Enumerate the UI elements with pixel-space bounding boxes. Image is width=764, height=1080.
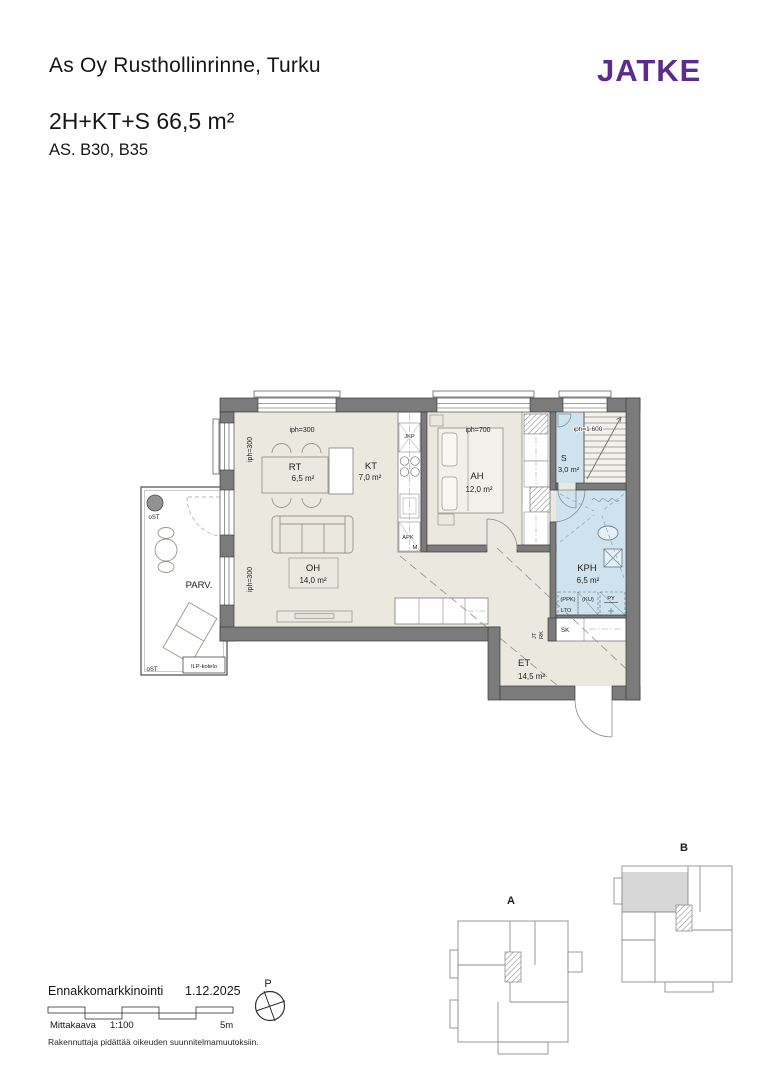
room-ah-area: 12,0 m² xyxy=(465,485,492,494)
floorplan-page: As Oy Rusthollinrinne, Turku JATKE 2H+KT… xyxy=(0,0,764,1080)
room-rt-area: 6,5 m² xyxy=(292,474,315,483)
room-s-name: S xyxy=(561,453,567,463)
scale-label: Mittakaava xyxy=(50,1020,96,1031)
marketing-status: Ennakkomarkkinointi xyxy=(48,984,163,998)
room-parv-name: PARV. xyxy=(186,580,213,591)
pillow xyxy=(442,477,457,510)
apk-label: APK xyxy=(402,535,414,541)
room-kph-name: KPH xyxy=(577,563,597,574)
ost-bottom-label: oST xyxy=(146,667,157,673)
room-kt-area: 7,0 m² xyxy=(359,473,382,482)
shaft-hatch-top xyxy=(524,414,548,434)
room-oh-area: 14,0 m² xyxy=(299,576,326,585)
sk-label: SK xyxy=(561,627,570,634)
rk-label: RK xyxy=(539,631,545,639)
iph-stair-top: iph=1 600 xyxy=(574,426,603,433)
scale-caption: Mittakaava1:100 xyxy=(50,1020,134,1031)
floor-plan-svg: RT 6,5 m² KT 7,0 m² OH 14,0 m² AH 12,0 m… xyxy=(0,0,764,1080)
room-s-area: 3,0 m² xyxy=(558,465,580,474)
ppk-label: (PPK) xyxy=(560,597,575,603)
room-et-name: ET xyxy=(518,658,530,669)
disclaimer: Rakennuttaja pidättää oikeuden suunnitel… xyxy=(48,1037,259,1047)
keyplan-a: A xyxy=(450,895,582,1054)
balcony-table-chairs xyxy=(155,528,177,573)
plan-date: 1.12.2025 xyxy=(185,984,241,998)
keyplan-b: B xyxy=(614,842,732,992)
north-compass: P xyxy=(256,978,286,1021)
keyplan-a-label: A xyxy=(507,895,515,907)
jkp-label: JKP xyxy=(404,434,415,440)
keyplan-b-label: B xyxy=(680,842,688,854)
jt-label: JT xyxy=(532,632,538,639)
iph-rt-left: iph=300 xyxy=(247,437,254,462)
lto-label: LTO xyxy=(561,608,572,614)
scale-ratio: 1:100 xyxy=(110,1020,134,1031)
py-label: PY xyxy=(607,596,615,602)
shaft-hatch-mid xyxy=(530,487,550,512)
ilp-label: ILP-kotelo xyxy=(191,664,217,670)
room-oh-name: OH xyxy=(306,563,320,574)
iph-ah-top: iph=700 xyxy=(465,427,490,434)
room-et-area: 14,5 m² xyxy=(518,672,545,681)
ost-unit xyxy=(147,495,163,511)
scale-length: 5m xyxy=(220,1020,233,1031)
m-label: M xyxy=(413,545,418,551)
room-rt-name: RT xyxy=(289,462,302,473)
iph-oh-left: iph=300 xyxy=(247,567,254,592)
closet-column xyxy=(522,412,550,545)
room-ah-name: AH xyxy=(470,471,483,482)
pillow xyxy=(442,433,457,466)
sink xyxy=(598,526,618,540)
entry-door-swing xyxy=(575,700,612,737)
ku-label: (KU) xyxy=(582,597,594,603)
kitchen-strip xyxy=(398,412,421,552)
iph-rt-top: iph=300 xyxy=(289,427,314,434)
kitchen-island xyxy=(329,448,353,494)
north-label: P xyxy=(264,978,271,990)
ost-top-label: oST xyxy=(148,515,159,521)
room-kph-area: 6,5 m² xyxy=(577,576,600,585)
scale-bar xyxy=(48,1007,233,1019)
room-kt-name: KT xyxy=(365,461,377,472)
balcony-lounge-chair xyxy=(163,602,217,663)
hall-wardrobes xyxy=(395,598,488,624)
